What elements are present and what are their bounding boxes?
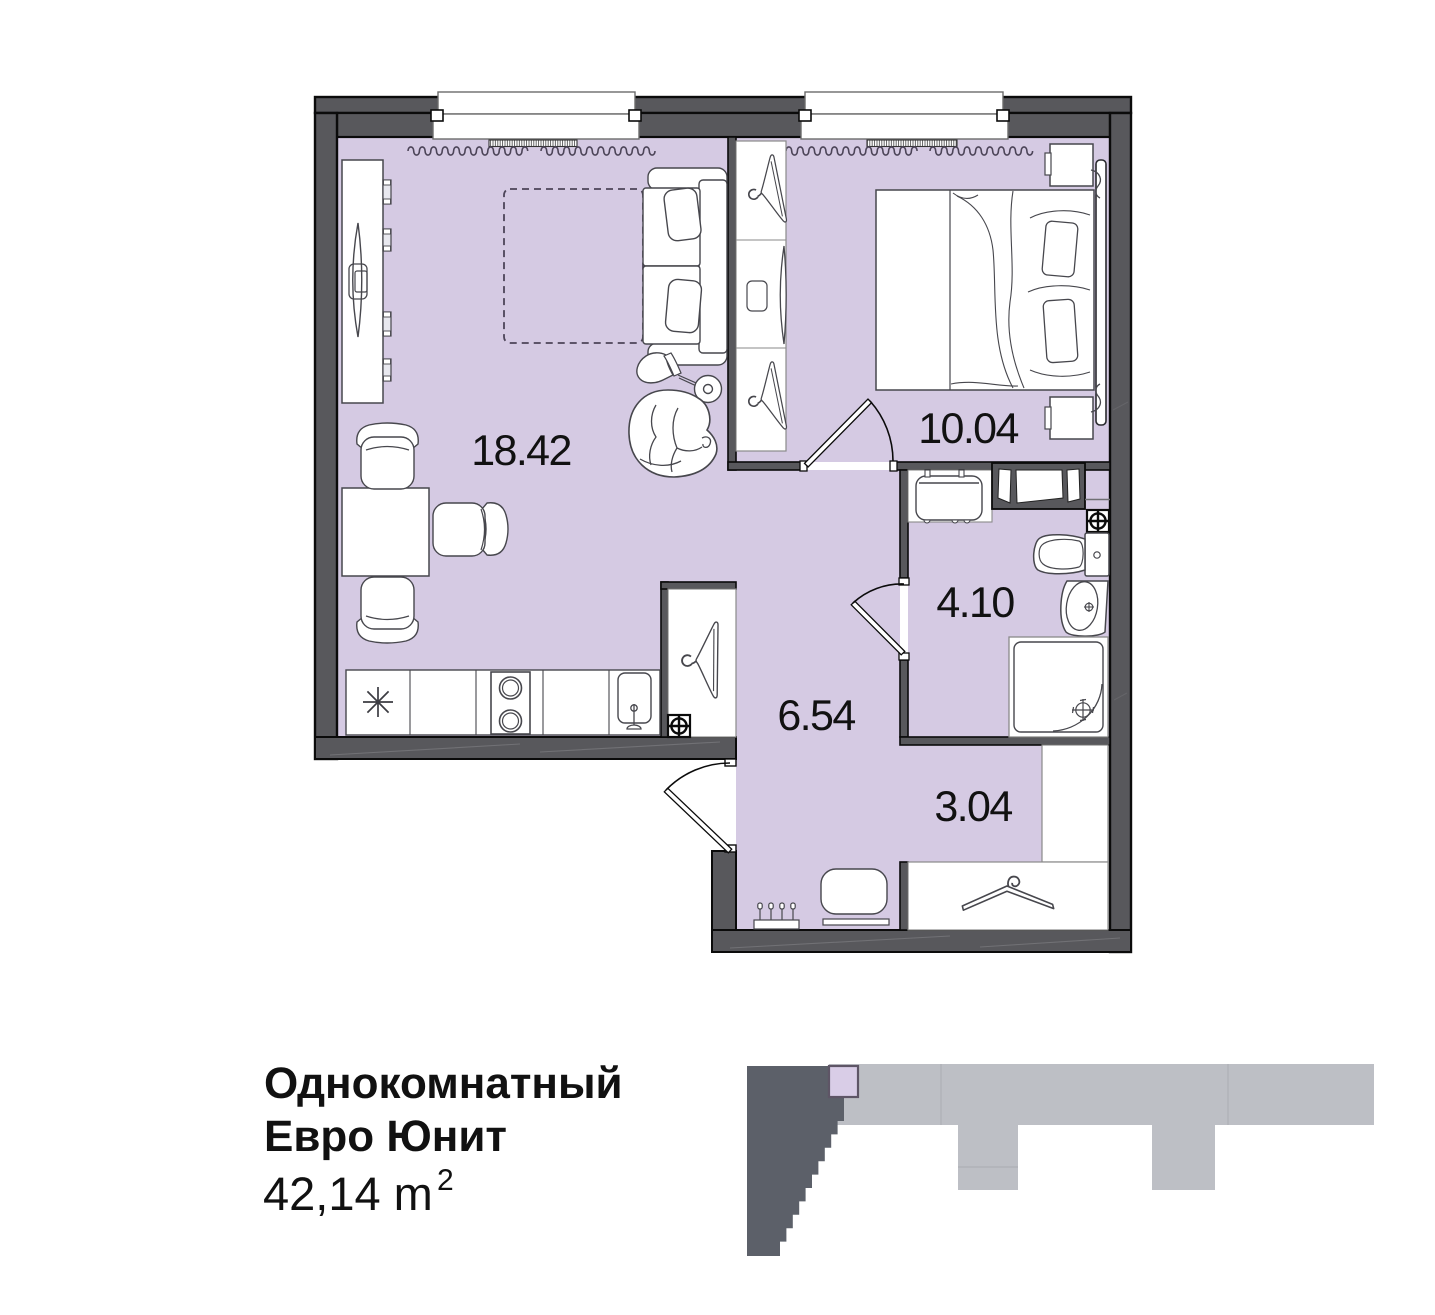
svg-text:Однокомнатный: Однокомнатный: [264, 1059, 623, 1108]
svg-text:2: 2: [437, 1164, 454, 1197]
svg-text:6.54: 6.54: [777, 692, 855, 740]
svg-text:10.04: 10.04: [918, 405, 1018, 453]
svg-text:18.42: 18.42: [471, 427, 571, 475]
svg-text:4.10: 4.10: [936, 579, 1014, 627]
svg-text:Евро Юнит: Евро Юнит: [264, 1112, 507, 1161]
svg-text:3.04: 3.04: [934, 783, 1012, 831]
svg-text:42,14 m: 42,14 m: [263, 1167, 433, 1220]
